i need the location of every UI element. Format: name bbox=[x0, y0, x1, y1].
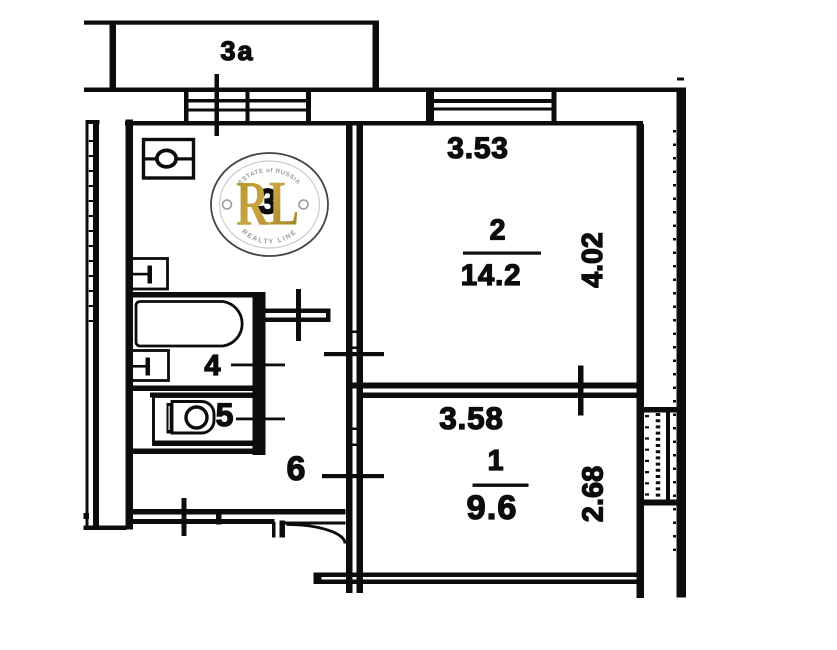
svg-text:5: 5 bbox=[216, 397, 234, 433]
svg-text:6: 6 bbox=[287, 450, 306, 488]
svg-text:9.6: 9.6 bbox=[467, 489, 518, 527]
svg-text:2.68: 2.68 bbox=[578, 466, 610, 522]
svg-text:3.53: 3.53 bbox=[447, 132, 509, 165]
svg-text:RL: RL bbox=[236, 169, 299, 239]
svg-text:2: 2 bbox=[490, 215, 506, 247]
svg-text:4: 4 bbox=[204, 350, 220, 382]
svg-text:3.58: 3.58 bbox=[439, 400, 504, 436]
svg-text:4.02: 4.02 bbox=[577, 232, 609, 287]
svg-text:14.2: 14.2 bbox=[461, 259, 522, 292]
svg-text:3а: 3а bbox=[220, 36, 254, 66]
svg-text:1: 1 bbox=[488, 445, 504, 477]
